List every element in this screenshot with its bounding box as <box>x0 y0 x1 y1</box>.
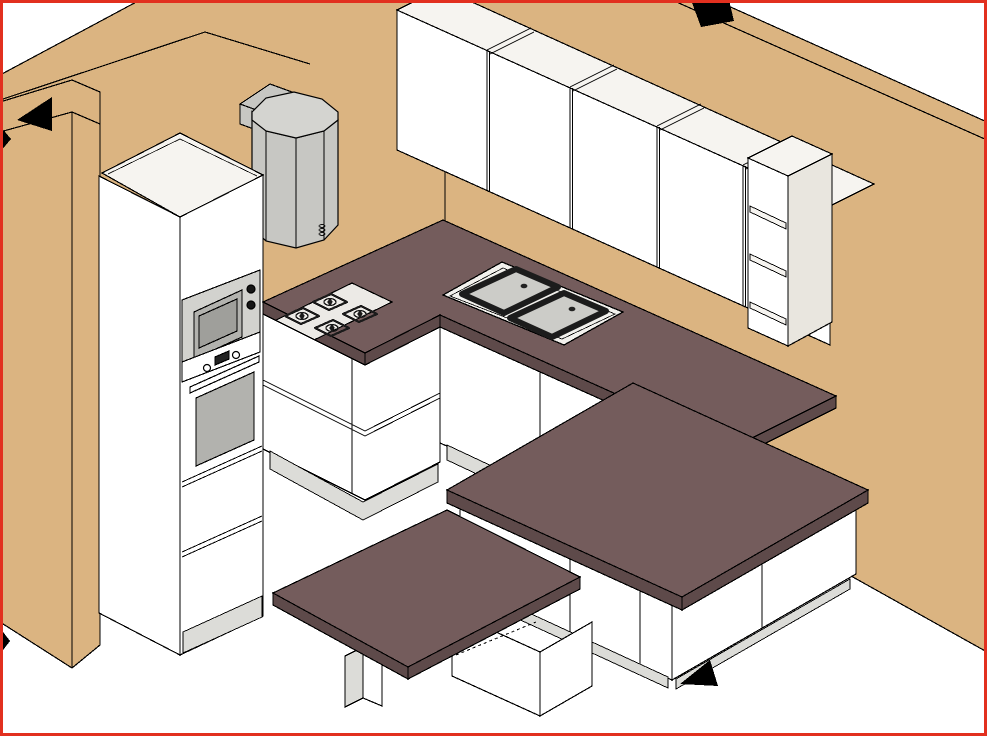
left-wall-end <box>0 80 100 668</box>
left-wall-end-body <box>0 80 100 668</box>
shelf-unit-side <box>788 154 832 346</box>
sink-drain <box>569 307 576 312</box>
oven-knob <box>233 352 240 359</box>
open-shelf-unit <box>748 136 832 346</box>
oven-knob <box>204 365 211 372</box>
microwave-knob <box>247 301 255 309</box>
tall-unit-side <box>99 176 180 655</box>
kitchen-3d-viewport <box>0 0 987 737</box>
microwave-knob <box>247 285 255 293</box>
table-leg-side <box>345 647 363 707</box>
sink-drain <box>521 284 528 289</box>
tall-appliance-unit <box>99 133 263 655</box>
